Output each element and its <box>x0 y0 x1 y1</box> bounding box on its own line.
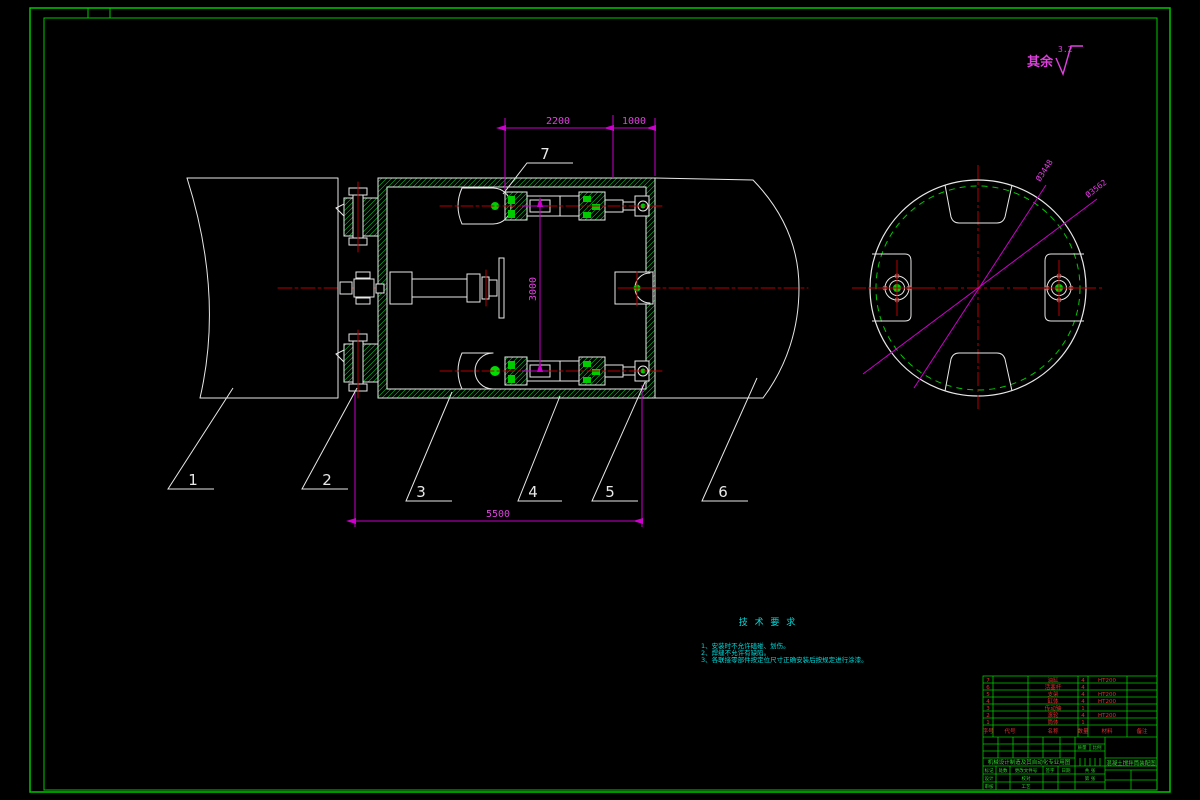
svg-text:1: 1 <box>1081 720 1085 726</box>
left-roller-bolt <box>868 260 926 316</box>
right-roller-bolt <box>1030 260 1088 316</box>
svg-text:4: 4 <box>1081 692 1085 698</box>
svg-text:标记: 标记 <box>985 767 994 774</box>
dim-outer-diameter: Ø3562 <box>1083 177 1108 200</box>
svg-text:4: 4 <box>1081 678 1085 684</box>
svg-text:活塞杆: 活塞杆 <box>1045 683 1062 691</box>
callout-5: 5 <box>592 382 645 501</box>
svg-text:5: 5 <box>605 483 615 501</box>
svg-text:1: 1 <box>188 471 198 489</box>
svg-text:第 张: 第 张 <box>1085 775 1096 782</box>
drawing-title: 混凝土搅拌筒装配图 <box>1106 759 1156 767</box>
svg-text:3: 3 <box>986 706 990 712</box>
bom-header: 序号 代号 名称 数量 材料 备注 <box>982 727 1148 735</box>
svg-text:代号: 代号 <box>1004 727 1016 735</box>
dim-3000: 3000 <box>528 277 539 301</box>
drawing-svg: 其余 3.2 <box>0 0 1200 800</box>
cad-canvas: 其余 3.2 <box>0 0 1200 800</box>
end-view: Ø3448 Ø3562 <box>852 157 1109 411</box>
border-frame <box>30 8 1170 792</box>
titleblock-banner: 机械设计制造及其自动化专业用图 <box>988 758 1071 766</box>
svg-text:4: 4 <box>1081 699 1085 705</box>
techreq-title: 技 术 要 求 <box>739 616 798 628</box>
svg-text:共 张: 共 张 <box>1085 767 1096 774</box>
svg-text:4: 4 <box>1081 713 1085 719</box>
callout-1: 1 <box>168 388 233 489</box>
border-tab <box>88 8 110 18</box>
svg-text:传动轴: 传动轴 <box>1045 704 1062 712</box>
svg-text:6: 6 <box>986 685 990 691</box>
svg-text:HT200: HT200 <box>1098 692 1116 698</box>
svg-text:支架: 支架 <box>1047 690 1059 698</box>
svg-text:日期: 日期 <box>1062 768 1071 774</box>
svg-text:滚轮: 滚轮 <box>1047 711 1059 719</box>
svg-text:比例: 比例 <box>1093 744 1102 751</box>
svg-text:6: 6 <box>718 483 728 501</box>
svg-text:3: 3 <box>416 483 426 501</box>
svg-text:4: 4 <box>1081 685 1085 691</box>
callout-6: 6 <box>702 378 757 501</box>
svg-text:名称: 名称 <box>1047 727 1059 735</box>
svg-text:序号: 序号 <box>982 727 994 735</box>
techreq-item-3: 3、各联接零部件按定位尺寸正确安装后按规定进行涂漆。 <box>701 655 868 664</box>
roughness-value: 3.2 <box>1058 45 1073 54</box>
svg-text:HT200: HT200 <box>1098 713 1116 719</box>
shaft-coupling <box>340 272 384 304</box>
lower-clamp <box>336 330 378 398</box>
dim-2200: 2200 <box>546 116 570 127</box>
technical-requirements: 技 术 要 求 1、安装时不允许磕碰、划伤。 2、焊缝不允许有缺陷。 3、各联接… <box>701 616 868 664</box>
svg-text:HT200: HT200 <box>1098 678 1116 684</box>
svg-text:筒体: 筒体 <box>1047 718 1059 726</box>
svg-text:4: 4 <box>986 699 990 705</box>
svg-text:缸体: 缸体 <box>1047 697 1059 705</box>
dim-pitch-diameter: Ø3448 <box>1033 157 1055 183</box>
title-block: 序号 代号 名称 数量 材料 备注 7 油缸 4 HT200 6 活塞杆 4 5 <box>982 676 1157 790</box>
svg-text:4: 4 <box>528 483 538 501</box>
callout-4: 4 <box>518 396 562 501</box>
callout-3: 3 <box>406 392 452 501</box>
callout-2: 2 <box>302 388 357 489</box>
svg-text:2: 2 <box>322 471 332 489</box>
svg-text:5: 5 <box>986 692 990 698</box>
dim-1000: 1000 <box>622 116 646 127</box>
svg-text:1: 1 <box>1081 706 1085 712</box>
svg-text:工艺: 工艺 <box>1022 784 1031 790</box>
svg-text:2: 2 <box>986 713 990 719</box>
surface-roughness-note: 其余 3.2 <box>1027 45 1083 74</box>
svg-text:HT200: HT200 <box>1098 699 1116 705</box>
svg-text:数量: 数量 <box>1077 727 1089 735</box>
svg-text:7: 7 <box>540 145 550 163</box>
surface-note-prefix: 其余 <box>1027 54 1054 70</box>
svg-text:处数: 处数 <box>999 767 1008 774</box>
dim-5500: 5500 <box>486 509 510 520</box>
right-wall-bracket <box>615 272 660 306</box>
main-assembly-view <box>187 178 808 398</box>
svg-text:备注: 备注 <box>1136 727 1148 735</box>
svg-text:材料: 材料 <box>1101 727 1113 735</box>
svg-text:校对: 校对 <box>1022 775 1031 782</box>
svg-text:设计: 设计 <box>985 775 994 782</box>
svg-text:签字: 签字 <box>1046 767 1055 774</box>
svg-text:1: 1 <box>986 720 990 726</box>
svg-text:审核: 审核 <box>985 783 994 790</box>
bom-rows: 7 油缸 4 HT200 6 活塞杆 4 5 支架 4 HT200 4 缸体 4 <box>986 676 1116 726</box>
svg-text:更改文件号: 更改文件号 <box>1015 767 1038 774</box>
svg-text:7: 7 <box>986 678 990 684</box>
upper-clamp <box>336 182 378 252</box>
svg-text:质量: 质量 <box>1078 744 1087 751</box>
svg-text:油缸: 油缸 <box>1047 676 1059 684</box>
